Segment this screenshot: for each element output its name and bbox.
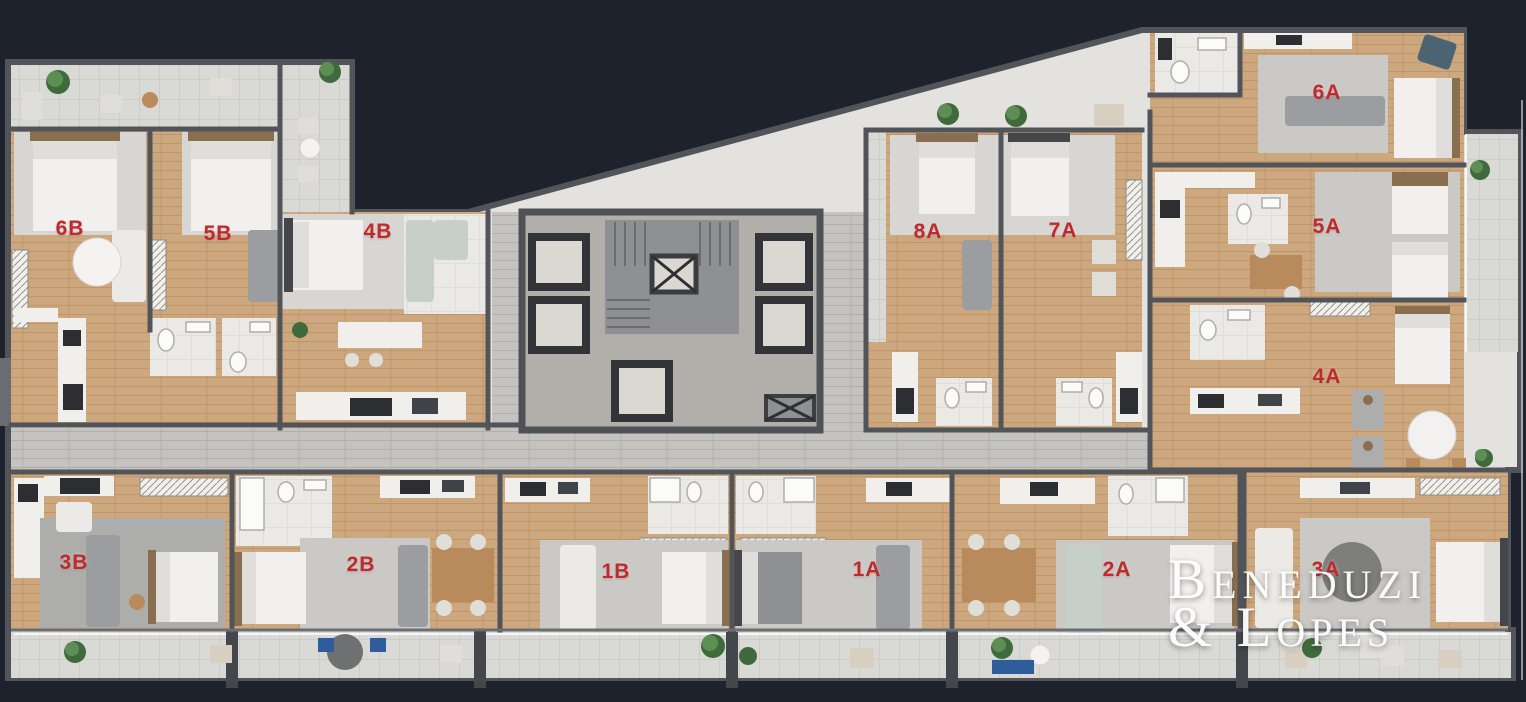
unit-label-4B: 4B bbox=[364, 220, 393, 244]
unit-label-2B: 2B bbox=[347, 553, 376, 577]
unit-label-3B: 3B bbox=[60, 551, 89, 575]
unit-label-1A: 1A bbox=[853, 558, 882, 582]
unit-label-8A: 8A bbox=[914, 220, 943, 244]
unit-label-5A: 5A bbox=[1313, 215, 1342, 239]
unit-label-5B: 5B bbox=[204, 222, 233, 246]
unit-label-6B: 6B bbox=[56, 217, 85, 241]
unit-label-7A: 7A bbox=[1049, 219, 1078, 243]
watermark-line2: & Lopes bbox=[1168, 604, 1427, 652]
unit-label-4A: 4A bbox=[1313, 365, 1342, 389]
unit-label-2A: 2A bbox=[1103, 558, 1132, 582]
floor-plan-canvas: 6B5B4B8A7A6A5A4A3A3B2B1B1A2A Beneduzi & … bbox=[0, 0, 1526, 702]
unit-label-1B: 1B bbox=[602, 560, 631, 584]
unit-label-6A: 6A bbox=[1313, 81, 1342, 105]
watermark-logo: Beneduzi & Lopes bbox=[1168, 556, 1427, 652]
